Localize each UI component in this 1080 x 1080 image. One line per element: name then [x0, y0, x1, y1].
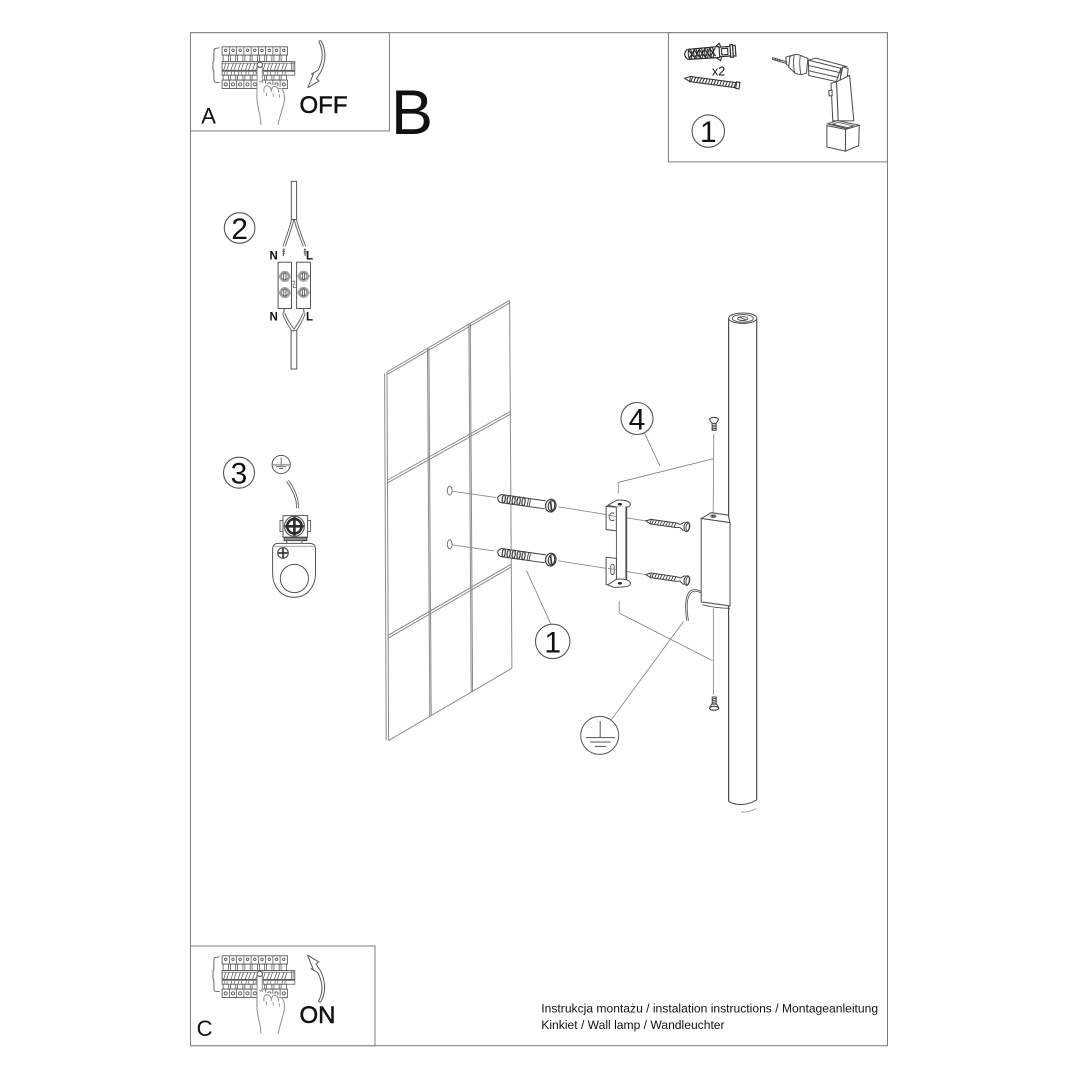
svg-text:L: L — [306, 251, 313, 263]
svg-text:C: C — [197, 1016, 213, 1041]
svg-text:2: 2 — [231, 213, 248, 246]
svg-text:ON: ON — [300, 1002, 336, 1029]
svg-text:Instrukcja montażu / instalati: Instrukcja montażu / instalation instruc… — [541, 1001, 878, 1015]
svg-text:1: 1 — [700, 116, 717, 149]
svg-text:N: N — [269, 251, 277, 263]
svg-text:N: N — [269, 311, 277, 323]
svg-text:3: 3 — [231, 458, 248, 491]
svg-text:OFF: OFF — [300, 92, 348, 119]
svg-text:Kinkiet / Wall lamp / Wandleuc: Kinkiet / Wall lamp / Wandleuchter — [541, 1018, 724, 1032]
svg-text:1: 1 — [544, 626, 561, 659]
svg-text:4: 4 — [629, 403, 646, 436]
svg-text:x2: x2 — [712, 65, 725, 79]
svg-text:L: L — [306, 311, 313, 323]
svg-text:B: B — [391, 78, 433, 148]
svg-text:A: A — [201, 103, 216, 128]
